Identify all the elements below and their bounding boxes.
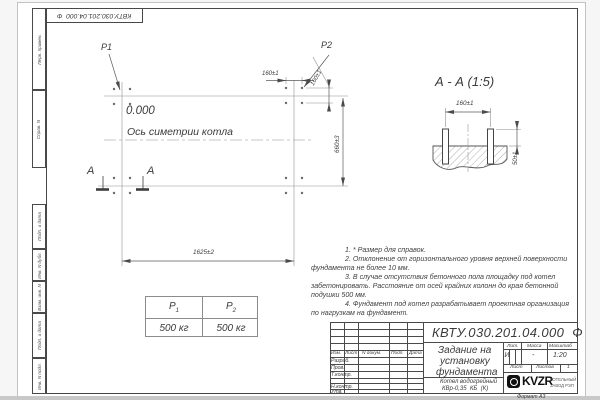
notes-block: 1. * Размер для справок. 2. Отклонение о… <box>311 246 561 318</box>
format-note: Формат А3 <box>517 394 545 400</box>
sheet-label: Лист <box>510 365 523 370</box>
col-izm: Изм. <box>331 351 341 356</box>
row-razrab: Разраб. <box>331 358 350 364</box>
divider <box>330 343 423 344</box>
row-prov: Пров. <box>331 365 345 371</box>
row-utv: Утв. <box>331 389 343 395</box>
divider <box>521 342 522 364</box>
doc-number: КВТУ.030.201.04.000 Ф <box>432 325 583 340</box>
sheets-value: 1 <box>567 365 570 370</box>
load-table-value-p1: 500 кг <box>146 323 202 334</box>
section-letter-left: А <box>87 165 94 177</box>
p1-leader-line <box>109 54 120 90</box>
section-title: А - А (1:5) <box>435 74 494 89</box>
product-line-1: Котел водогрейный <box>440 379 497 385</box>
symmetry-axis-label: Ось симетрии котла <box>127 126 233 138</box>
dim-1625-label: 1625±2 <box>193 249 214 256</box>
kvzr-logo-icon <box>507 375 520 388</box>
note-line: 1. * Размер для справок. <box>311 246 561 255</box>
note-line: 4. Фундамент под котел разрабатывает про… <box>311 300 561 309</box>
col-doc: N докум. <box>362 351 381 356</box>
divider <box>547 342 548 364</box>
note-line: забетонировать. Расстояние от осей крайн… <box>311 282 561 291</box>
divider <box>423 322 424 394</box>
title-line-1: Задание на <box>438 345 491 356</box>
p1-label: P1 <box>101 42 112 52</box>
load-table-header-p2: P2 <box>203 301 259 314</box>
p2-label: P2 <box>321 40 332 50</box>
load-table-value-p2: 500 кг <box>203 323 259 334</box>
section-cut-marks <box>96 176 149 190</box>
product-line-2: КВр-0,35 КБ (К) <box>442 386 488 392</box>
plan-dimensions <box>109 54 343 261</box>
note-line: подушки 500 мм. <box>311 291 561 300</box>
lit-label: Лит. <box>507 344 518 349</box>
scale-label: Масштаб <box>549 344 572 349</box>
kvzr-logo-sub1: КОТЕЛЬНЫЙ <box>550 377 576 382</box>
mass-label: Масса <box>527 344 541 349</box>
kvzr-logo-sub2: ЗАВОД РЭП <box>550 383 574 388</box>
dim-160-section-label: 160±1 <box>456 100 473 107</box>
dim-160-horizontal-label: 160±1 <box>262 71 279 77</box>
divider <box>503 372 578 373</box>
lit-value: И <box>505 352 510 359</box>
divider <box>146 318 257 319</box>
scale-value: 1:20 <box>553 352 567 359</box>
col-podp: Подп. <box>391 351 404 356</box>
section-view <box>433 108 521 172</box>
title-line-2: установку <box>440 356 490 367</box>
note-line: 2. Отклонение от горизонтального уровня … <box>311 255 561 264</box>
load-table: P1 P2 500 кг 500 кг <box>145 296 258 337</box>
note-line: по нагрузкам на фундамент. <box>311 309 561 318</box>
elevation-mark: 0.000 <box>126 105 155 117</box>
row-tkontr: Т.контр. <box>331 372 352 378</box>
divider <box>515 349 516 364</box>
anchor-bolt-right <box>488 129 494 164</box>
anchor-bolt-left <box>443 129 449 164</box>
dim-660-label: 660±3 <box>334 136 341 153</box>
divider <box>330 336 423 337</box>
divider <box>560 364 561 372</box>
note-line: 3. В случае отсутствия бетонного пола пл… <box>311 273 561 282</box>
col-list: Лист <box>345 351 357 356</box>
divider <box>531 364 532 372</box>
drawing-sheet-page: Перв. примен. Справ. N Подп. и дата Инв.… <box>0 0 600 400</box>
load-table-header-p1: P1 <box>146 301 202 314</box>
divider <box>330 329 423 330</box>
note-line: фундамента не более 10 мм. <box>311 264 561 273</box>
col-data: Дата <box>409 351 422 356</box>
title-line-3: фундамента <box>436 367 497 378</box>
divider <box>503 349 578 350</box>
dim-50-label: 50±1 <box>513 152 519 165</box>
section-letter-right: А <box>147 165 154 177</box>
plan-view <box>98 57 348 266</box>
sheets-label: Листов <box>536 365 554 370</box>
mass-value: - <box>532 352 534 359</box>
divider <box>330 378 423 379</box>
plan-anchor-bolts <box>113 87 303 194</box>
kvzr-logo-text: KVZR <box>522 374 553 388</box>
